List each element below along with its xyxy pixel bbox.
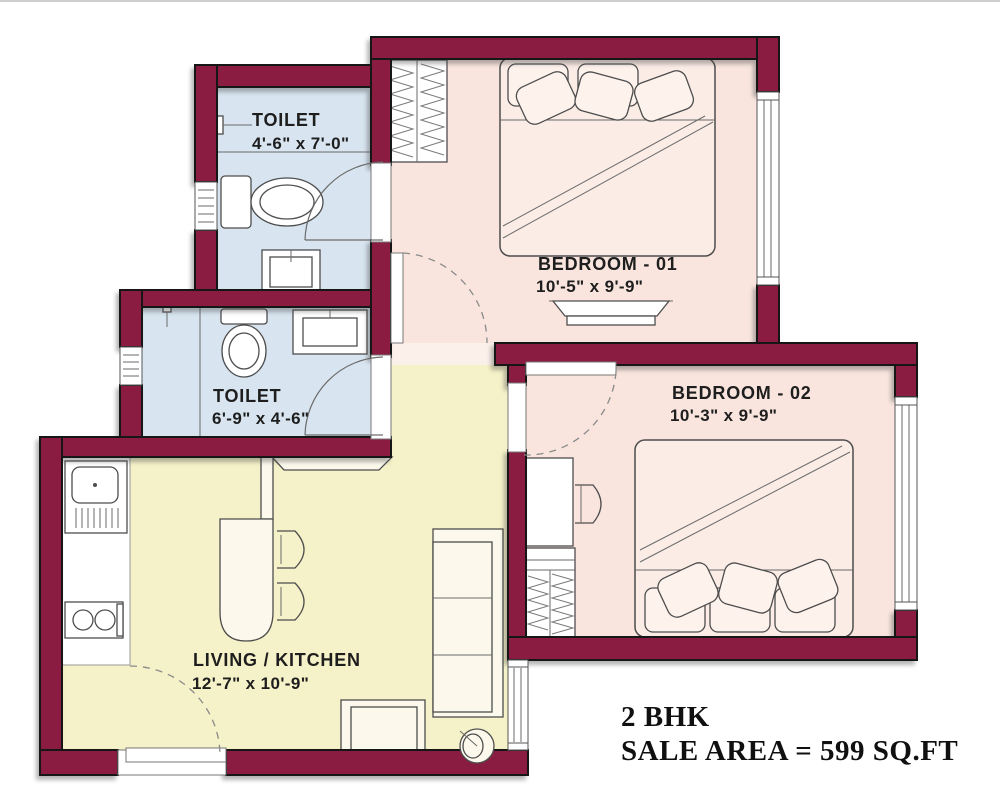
bedroom-2-dims: 10'-3" x 9'-9" [670,406,777,425]
plan-summary: 2 BHK SALE AREA = 599 SQ.FT [621,701,958,767]
passage-floor [383,355,520,457]
stove [65,602,123,638]
bedroom-1-dims: 10'-5" x 9'-9" [536,277,643,296]
unit-type-label: 2 BHK [621,701,710,733]
wall-toilet1-left-lower [195,230,217,292]
bedroom-2-name: BEDROOM - 02 [672,383,812,403]
bedroom-1-window [757,92,779,285]
toilet-1-window [195,182,217,230]
wall-bedroom2-right-upper [895,365,917,397]
armchair [341,700,425,757]
dresser [553,301,669,316]
wall-living-bottom-left [40,750,118,775]
page-top-border [0,0,1000,2]
dresser-base [567,316,655,325]
wall-bedroom2-bottom [508,637,917,660]
sale-area-label: SALE AREA = 599 SQ.FT [621,735,958,767]
wc-tank-icon [221,176,251,228]
sofa-cushions [433,542,492,712]
toilet-2-window [120,347,142,385]
wall-living-left [40,437,62,775]
living-window [508,660,528,750]
wall-bedroom1-right-lower [757,285,779,343]
wall-bedroom2-left-stub [508,365,526,385]
breakfast-table [220,519,273,641]
toilet-1-dims: 4'-6" x 7'-0" [252,134,349,153]
floor-plan-canvas: TOILET 4'-6" x 7'-0" TOILET 6'-9" x 4'-6… [0,0,1000,800]
wall-toilet1-left-upper [195,65,217,182]
living-dims: 12'-7" x 10'-9" [192,674,309,693]
study-desk [526,458,573,546]
wall-living-top [40,437,391,457]
sink-drain-icon [93,483,97,487]
breakfast-table-neck [261,457,273,519]
floor-plan-drawing: TOILET 4'-6" x 7'-0" TOILET 6'-9" x 4'-6… [0,0,1000,800]
wall-center-column-middle [371,240,391,357]
wall-toilet-divider-band [120,290,391,307]
wall-bedroom1-right-upper [757,37,779,92]
toilet-2-dims: 6'-9" x 4'-6" [212,409,309,428]
wall-toilet1-top [195,65,391,87]
stove-knob-bar [117,604,123,636]
wall-toilet2-left-upper [120,290,142,347]
wall-bedroom2-left [508,450,526,637]
fan-icon [460,729,494,763]
bedroom-2-window [895,397,917,610]
wc2-tank-icon [221,309,267,324]
bedroom-1-doorway-floor [391,343,495,365]
bedroom-1-name: BEDROOM - 01 [538,254,678,274]
wall-toilet2-left-lower [120,385,142,439]
wall-bedroom1-top [371,37,779,59]
kitchen-shelf [272,457,392,470]
toilet-2-name: TOILET [213,386,281,406]
living-name: LIVING / KITCHEN [193,650,361,670]
toilet-1-name: TOILET [252,110,320,130]
